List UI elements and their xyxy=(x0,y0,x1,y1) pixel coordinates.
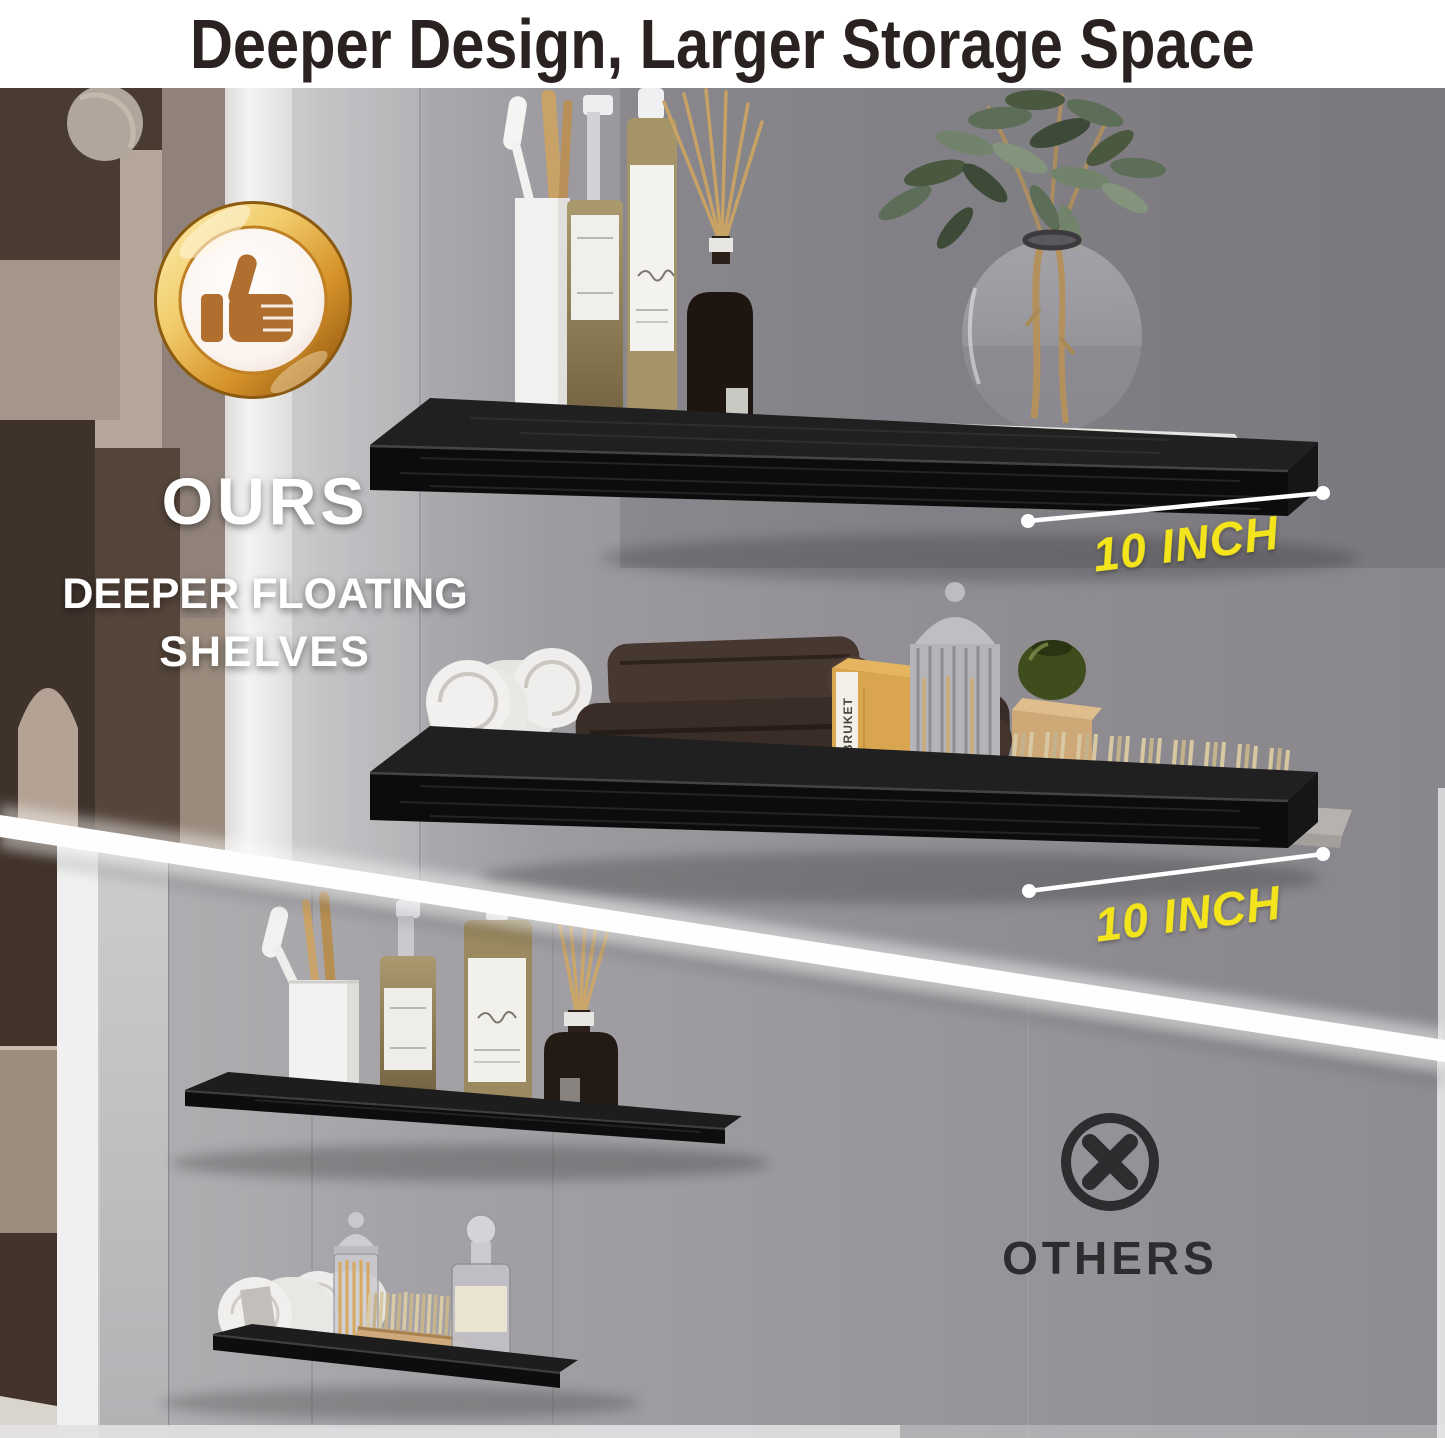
page-title: Deeper Design, Larger Storage Space xyxy=(190,4,1255,84)
scene-illustration: OTHERS xyxy=(0,88,1445,1438)
ours-heading: OURS xyxy=(162,464,369,538)
title-band: Deeper Design, Larger Storage Space xyxy=(0,0,1445,88)
ours-subheading-line2: SHELVES xyxy=(159,628,371,676)
promo-image: Deeper Design, Larger Storage Space xyxy=(0,0,1445,1438)
floor-strip xyxy=(0,1425,900,1438)
ours-subheading-line1: DEEPER FLOATING xyxy=(62,570,467,618)
others-heading: OTHERS xyxy=(1002,1232,1218,1284)
